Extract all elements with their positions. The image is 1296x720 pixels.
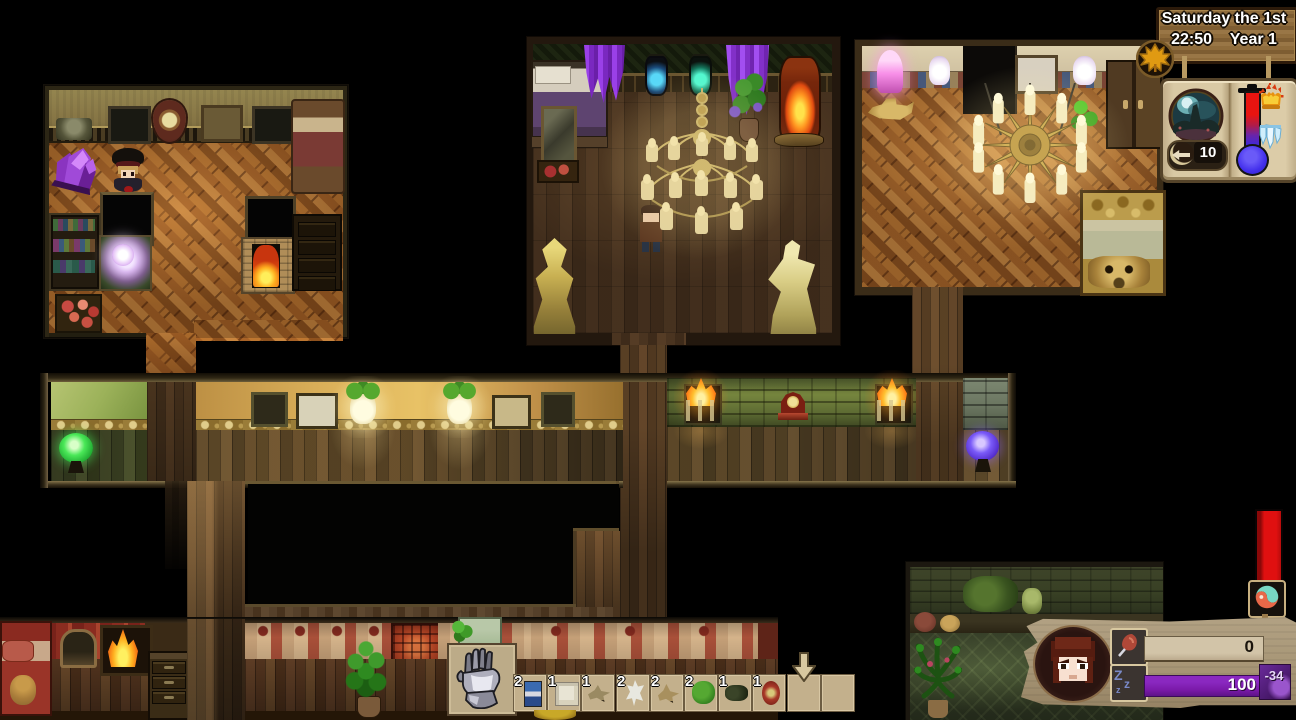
svg-text:Z: Z (1114, 667, 1123, 683)
svg-text:z: z (1124, 677, 1130, 691)
svg-text:z: z (1116, 685, 1121, 695)
